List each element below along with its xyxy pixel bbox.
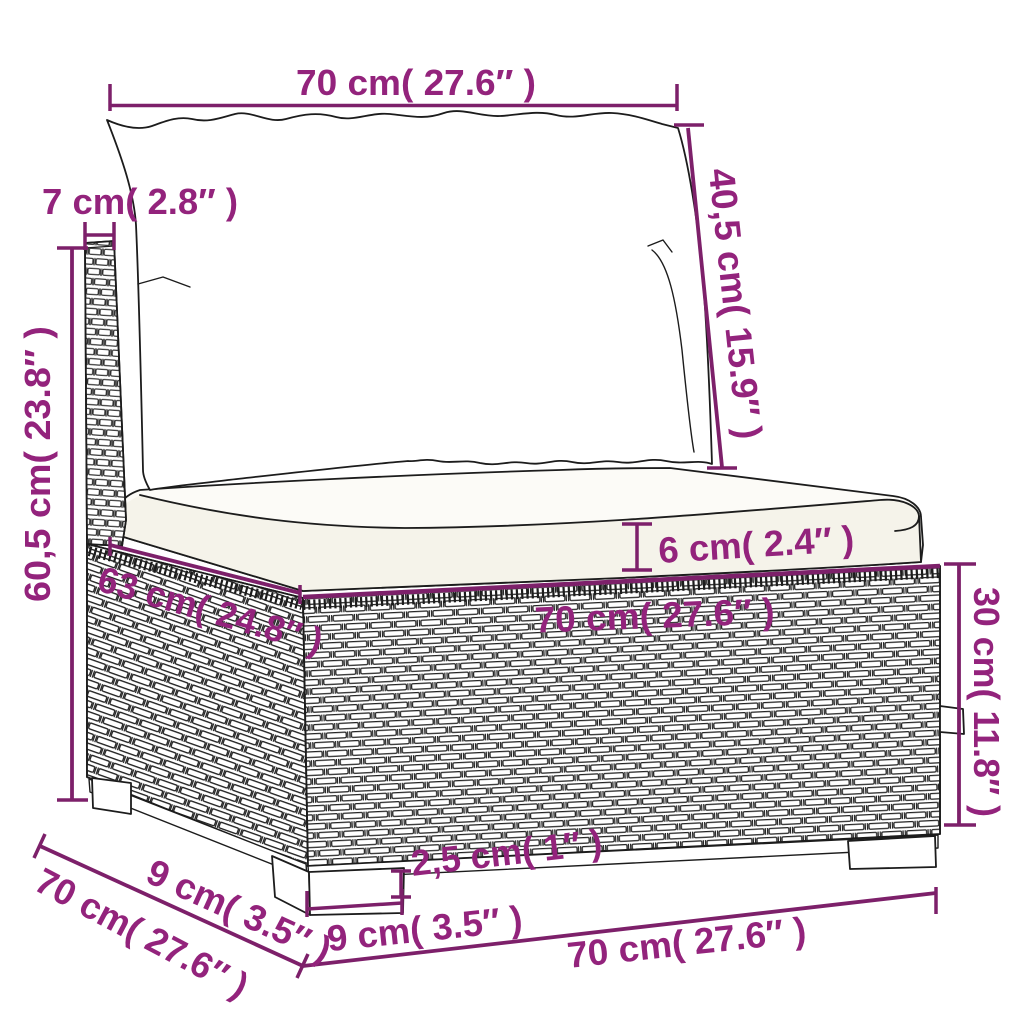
svg-text:60,5 cm( 23.8″ ): 60,5 cm( 23.8″ ) xyxy=(17,326,58,602)
svg-text:70 cm( 27.6″ ): 70 cm( 27.6″ ) xyxy=(296,62,536,103)
svg-text:30 cm( 11.8″ ): 30 cm( 11.8″ ) xyxy=(966,587,1007,817)
svg-text:7 cm( 2.8″ ): 7 cm( 2.8″ ) xyxy=(42,181,238,222)
